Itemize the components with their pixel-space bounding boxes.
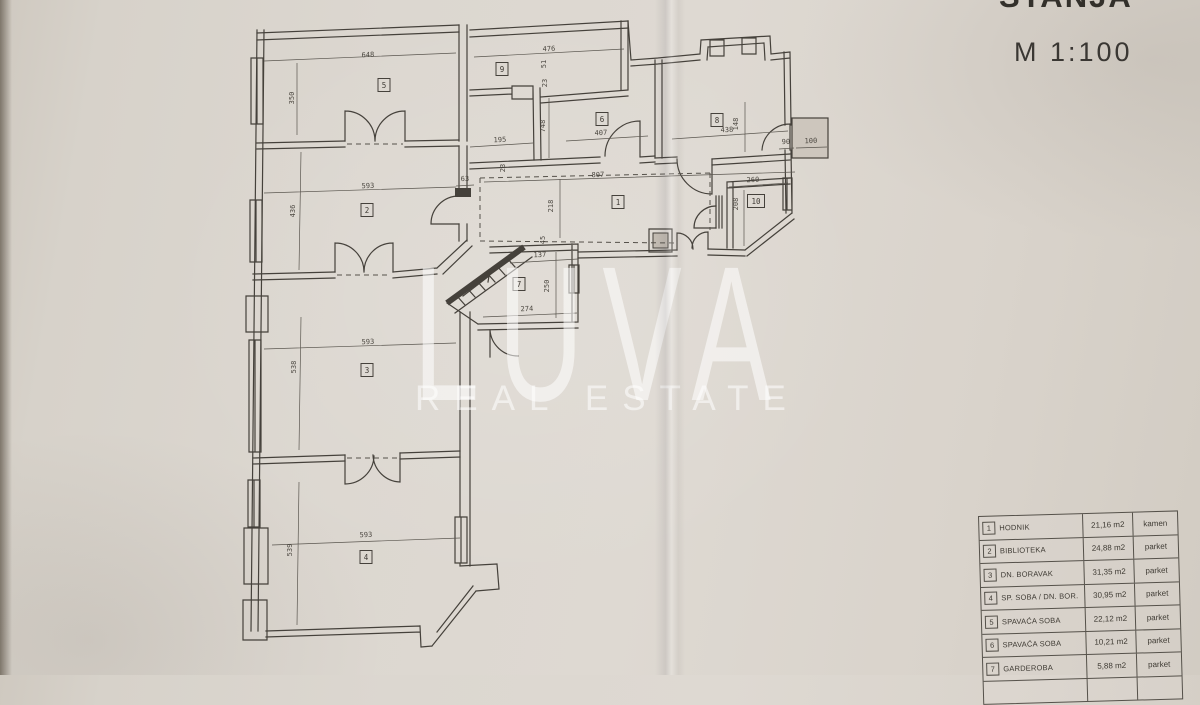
- svg-text:8: 8: [715, 116, 720, 125]
- dimension-label: 260: [746, 176, 759, 184]
- dimension-label: 51: [540, 60, 548, 68]
- legend-room-number: 6: [985, 639, 998, 652]
- svg-text:1: 1: [616, 198, 621, 207]
- legend-table: 1HODNIK21,16 m2kamen2BIBLIOTEKA24,88 m2p…: [978, 510, 1183, 705]
- dimension-label: 218: [547, 200, 555, 213]
- legend-room-floor: parket: [1136, 605, 1181, 629]
- room-number: 6: [596, 113, 608, 126]
- legend-room-floor: parket: [1136, 629, 1181, 653]
- dimension-label: 538: [290, 361, 298, 374]
- room-number: 8: [711, 114, 723, 127]
- svg-text:2: 2: [365, 206, 370, 215]
- dimension-label: 148: [732, 118, 740, 131]
- dimension-label: 63: [461, 175, 470, 183]
- legend-room-number: 7: [986, 662, 999, 675]
- dimension-label: 807: [591, 171, 604, 179]
- svg-text:10: 10: [751, 197, 761, 206]
- legend-room-name: 6SPAVAĆA SOBA: [982, 632, 1087, 657]
- dimension-label: 100: [804, 137, 817, 145]
- dimension-label: 23: [541, 79, 549, 87]
- legend-room-floor: parket: [1135, 582, 1180, 606]
- legend-room-name: 3DN. BORAVAK: [980, 561, 1085, 586]
- legend-room-floor: [1138, 676, 1183, 700]
- dimension-label: 593: [359, 531, 372, 539]
- legend-room-number: 4: [984, 592, 997, 605]
- watermark-tagline: REAL ESTATE: [415, 381, 800, 416]
- legend-room-number: 5: [985, 615, 998, 628]
- legend-room-area: 30,95 m2: [1085, 583, 1136, 607]
- dimension-label: 350: [288, 92, 296, 105]
- legend-room-name: 2BIBLIOTEKA: [980, 538, 1085, 563]
- dimension-label: 748: [539, 120, 547, 133]
- dimension-label: 23: [499, 164, 507, 172]
- svg-text:6: 6: [600, 115, 605, 124]
- svg-text:4: 4: [364, 553, 369, 562]
- photo-of-floor-plan: { "header": { "title_partial": "STANJA",…: [0, 0, 1200, 675]
- room-number: 9: [496, 63, 508, 76]
- legend-room-area: [1088, 677, 1139, 701]
- dimension-label: 195: [493, 136, 506, 144]
- svg-text:9: 9: [500, 65, 505, 74]
- dimension-label: 436: [289, 205, 297, 218]
- legend-room-area: 31,35 m2: [1084, 560, 1135, 584]
- legend-room-area: 24,88 m2: [1084, 536, 1135, 560]
- legend-room-name: 7GARDEROBA: [983, 655, 1088, 680]
- dimension-label: 208: [732, 198, 740, 211]
- legend-room-number: 1: [982, 521, 995, 534]
- dimension-label: 539: [286, 544, 294, 557]
- legend-room-area: 21,16 m2: [1083, 513, 1134, 537]
- dimension-label: 648: [361, 51, 374, 59]
- legend-room-area: 22,12 m2: [1086, 607, 1137, 631]
- legend-room-floor: parket: [1134, 535, 1179, 559]
- paper-crease: [655, 0, 685, 675]
- legend-room-area: 5,88 m2: [1087, 654, 1138, 678]
- legend-room-name: 5SPAVAĆA SOBA: [982, 608, 1087, 633]
- room-number: 5: [378, 79, 390, 92]
- room-number: 4: [360, 551, 372, 564]
- sheet-title: STANJA: [999, 0, 1133, 15]
- svg-text:3: 3: [365, 366, 370, 375]
- legend-room-name: 4SP. SOBA / DN. BOR.: [981, 585, 1086, 610]
- dimension-label: 593: [361, 338, 374, 346]
- dimension-label: 90: [782, 138, 791, 146]
- dimension-label: 593: [361, 182, 374, 190]
- room-number: 1: [612, 196, 624, 209]
- legend-room-area: 10,21 m2: [1086, 630, 1137, 654]
- dimension-label: 476: [542, 45, 555, 53]
- legend-row: [984, 676, 1183, 704]
- legend-room-floor: parket: [1137, 652, 1182, 676]
- legend-room-name: [984, 679, 1089, 704]
- legend-room-floor: parket: [1134, 558, 1179, 582]
- svg-text:5: 5: [382, 81, 387, 90]
- legend-room-number: 2: [983, 545, 996, 558]
- room-number: 2: [361, 204, 373, 217]
- legend-room-floor: kamen: [1133, 511, 1178, 535]
- room-number: 10: [748, 195, 765, 208]
- dimension-label: 407: [594, 129, 607, 137]
- legend-room-name: 1HODNIK: [979, 514, 1084, 539]
- legend-room-number: 3: [983, 568, 996, 581]
- room-number: 3: [361, 364, 373, 377]
- scale-label: M 1:100: [1014, 37, 1133, 68]
